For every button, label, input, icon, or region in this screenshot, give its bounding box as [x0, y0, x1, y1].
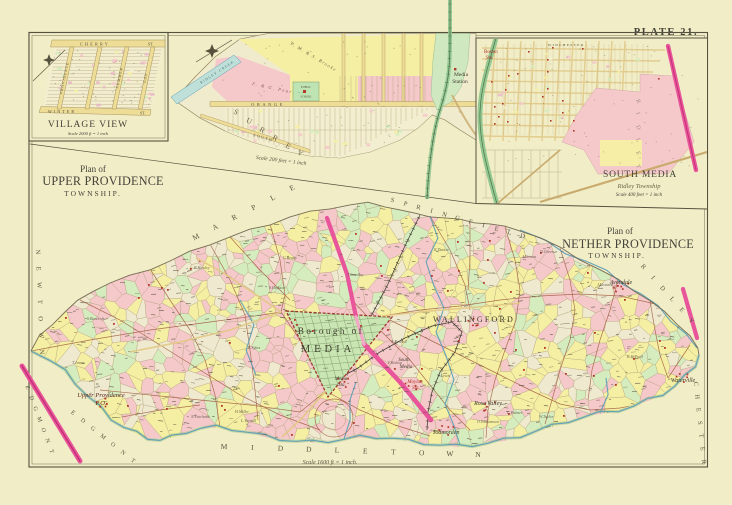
- svg-text:Upper Providence: Upper Providence: [77, 392, 125, 399]
- svg-text:T.Smedley: T.Smedley: [347, 272, 363, 277]
- svg-text:L: L: [335, 445, 340, 454]
- svg-text:A.Pennell: A.Pennell: [390, 339, 408, 344]
- svg-text:J.Lewis: J.Lewis: [438, 373, 451, 378]
- svg-text:Media: Media: [454, 72, 469, 78]
- svg-text:Moylan: Moylan: [406, 380, 423, 385]
- svg-text:NETHER PROVIDENCE: NETHER PROVIDENCE: [562, 237, 694, 251]
- svg-text:Sta.: Sta.: [486, 56, 493, 61]
- svg-text:T: T: [391, 447, 396, 456]
- svg-text:Todmorden: Todmorden: [433, 430, 460, 436]
- svg-text:B.Hawley: B.Hawley: [194, 265, 210, 270]
- svg-text:Sta.: Sta.: [338, 383, 346, 388]
- svg-text:Avondale: Avondale: [609, 280, 633, 286]
- svg-text:W: W: [446, 449, 454, 458]
- svg-text:R.Dutton: R.Dutton: [433, 247, 449, 252]
- svg-text:N: N: [34, 249, 41, 254]
- svg-text:P.O.: P.O.: [94, 400, 106, 407]
- svg-text:SOUTH MEDIA: SOUTH MEDIA: [603, 170, 677, 180]
- svg-text:Sta.: Sta.: [412, 386, 420, 391]
- svg-text:T: T: [36, 300, 43, 304]
- svg-text:O: O: [37, 316, 44, 321]
- svg-text:Media: Media: [399, 365, 413, 370]
- svg-text:Scale 2000 ft = 1 inch: Scale 2000 ft = 1 inch: [68, 131, 109, 136]
- svg-text:E: E: [698, 447, 705, 452]
- svg-text:UPPER PROVIDENCE: UPPER PROVIDENCE: [42, 174, 163, 188]
- svg-text:Plan of: Plan of: [80, 164, 106, 174]
- svg-text:Borough of: Borough of: [298, 326, 364, 336]
- svg-text:VILLAGE VIEW: VILLAGE VIEW: [48, 120, 128, 130]
- svg-text:MEDIA: MEDIA: [301, 344, 355, 355]
- svg-text:E: E: [363, 446, 368, 455]
- svg-text:C.Beatty: C.Beatty: [283, 255, 297, 260]
- svg-text:CHERRY: CHERRY: [80, 42, 110, 47]
- svg-text:D: D: [306, 445, 312, 454]
- svg-text:WINTER: WINTER: [48, 109, 76, 114]
- svg-text:Boston: Boston: [484, 50, 498, 55]
- svg-text:ST.: ST.: [140, 111, 145, 116]
- svg-text:C.Palmer: C.Palmer: [507, 410, 523, 415]
- svg-text:D: D: [278, 444, 284, 453]
- svg-text:E: E: [35, 266, 42, 270]
- svg-text:N: N: [38, 349, 45, 354]
- svg-text:T: T: [697, 434, 704, 439]
- svg-text:Waterville: Waterville: [671, 378, 696, 384]
- svg-text:O.Williamson: O.Williamson: [477, 419, 499, 424]
- svg-text:PUBLIC: PUBLIC: [301, 86, 311, 89]
- svg-text:Scale 1600 ft = 1 inch.: Scale 1600 ft = 1 inch.: [303, 459, 358, 466]
- svg-text:N.Fairlamb: N.Fairlamb: [190, 414, 210, 419]
- svg-text:Media: Media: [334, 377, 348, 382]
- svg-text:Scale 400 feet = 1 inch: Scale 400 feet = 1 inch: [616, 193, 663, 198]
- svg-text:TOWNSHIP.: TOWNSHIP.: [64, 189, 122, 198]
- svg-text:SCHOOL: SCHOOL: [300, 96, 311, 99]
- svg-text:ORANGE: ORANGE: [251, 102, 285, 107]
- svg-text:Station: Station: [452, 79, 468, 85]
- svg-text:E.Worrall: E.Worrall: [626, 354, 644, 359]
- svg-text:N: N: [475, 450, 481, 459]
- svg-text:T.James: T.James: [72, 360, 85, 365]
- svg-text:TOWNSHIP.: TOWNSHIP.: [588, 251, 646, 260]
- svg-text:S.Bancroft: S.Bancroft: [87, 316, 105, 321]
- svg-text:M: M: [221, 442, 228, 451]
- svg-text:D.Green: D.Green: [539, 249, 554, 254]
- svg-text:WALLINGFORD: WALLINGFORD: [433, 315, 515, 324]
- svg-text:H.Miller: H.Miller: [234, 409, 249, 414]
- svg-text:E.Sykes: E.Sykes: [247, 345, 261, 350]
- svg-text:J.Vernon: J.Vernon: [522, 254, 536, 259]
- svg-text:L.Yarnall: L.Yarnall: [240, 418, 257, 423]
- svg-text:Plan of: Plan of: [607, 226, 633, 236]
- svg-text:S.Hinkson: S.Hinkson: [269, 285, 285, 290]
- svg-text:E: E: [694, 408, 701, 413]
- svg-text:Rose Valley: Rose Valley: [473, 401, 502, 407]
- svg-text:WINCHESTER: WINCHESTER: [548, 43, 585, 47]
- svg-text:Ridley Township: Ridley Township: [617, 183, 662, 190]
- svg-text:W.Taylor: W.Taylor: [539, 414, 554, 419]
- svg-text:ST.: ST.: [148, 42, 153, 47]
- svg-text:South: South: [398, 358, 410, 363]
- svg-text:O: O: [419, 448, 425, 457]
- svg-text:C: C: [692, 381, 699, 386]
